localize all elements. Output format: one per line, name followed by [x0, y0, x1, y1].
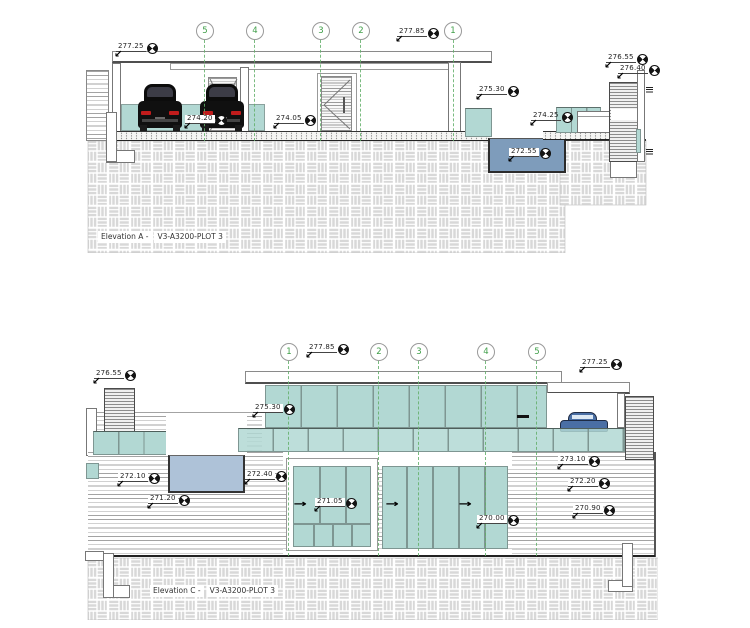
level-marker-chimney-top: 276.55 ↙	[94, 370, 124, 379]
grid-bubble: 3	[410, 343, 428, 361]
car-bumper	[142, 119, 178, 122]
spot-level-icon	[125, 370, 136, 381]
leader-arrow-icon: ↙	[556, 463, 564, 473]
grid-bubble-label: 2	[358, 26, 363, 36]
leader-arrow-icon: ↙	[507, 155, 515, 165]
spot-level-icon	[649, 65, 660, 76]
level-marker-pool-deck: 274.25 ↙	[531, 112, 561, 121]
level-marker-rear-wall: 276.40 ↙	[618, 65, 648, 74]
car-taillight-left	[141, 111, 151, 115]
caption-elevation-name: Elevation A -	[98, 231, 151, 243]
drawing-caption: Elevation C - V3-A3200-PLOT 3	[150, 585, 278, 597]
spot-level-icon	[611, 359, 622, 370]
door-mullion	[406, 467, 408, 548]
door-mullion	[313, 525, 315, 546]
spot-level-icon	[147, 43, 158, 54]
spot-level-icon	[346, 498, 357, 509]
drawing-canvas: Elevation A - V3-A3200-PLOT 3 5 4 3 2 1 …	[0, 0, 750, 628]
car-wheel	[235, 125, 242, 131]
level-marker-balustrade: 275.30 ↙	[477, 86, 507, 95]
leader-arrow-icon: ↙	[571, 512, 579, 522]
grid-bubble: 5	[196, 22, 214, 40]
leader-arrow-icon: ↙	[475, 93, 483, 103]
spot-level-icon	[428, 28, 439, 39]
footing-right	[610, 160, 637, 178]
grid-bubble-label: 5	[202, 26, 207, 36]
grid-bubble: 4	[477, 343, 495, 361]
grid-bubble: 1	[444, 22, 462, 40]
grid-bubble-label: 1	[450, 26, 455, 36]
level-marker-rear-wall-top: 276.55 ↙	[606, 54, 636, 63]
level-marker-garage-slab: 274.20 ↙	[185, 115, 215, 124]
spot-level-icon	[149, 473, 160, 484]
sliding-door-1-glass	[293, 466, 371, 524]
footing-left-stem	[103, 553, 114, 598]
grid-bubble: 4	[246, 22, 264, 40]
grid-line-1	[453, 40, 454, 141]
grid-line-3	[418, 361, 419, 556]
leader-arrow-icon: ↙	[183, 122, 191, 132]
grid-bubble: 2	[352, 22, 370, 40]
spot-level-icon	[508, 86, 519, 97]
footing-left-stem	[106, 112, 117, 162]
pool-section	[168, 455, 245, 493]
car-rear-window	[209, 87, 235, 97]
grid-bubble: 1	[280, 343, 298, 361]
pool-surround	[166, 415, 247, 455]
carport-column	[617, 393, 625, 428]
spot-level-icon	[305, 115, 316, 126]
leader-arrow-icon: ↙	[243, 478, 251, 488]
vent-mark	[646, 149, 653, 155]
leader-arrow-icon: ↙	[114, 50, 122, 60]
grid-bubble-label: 2	[376, 347, 381, 357]
leader-arrow-icon: ↙	[529, 119, 537, 129]
level-marker-garden-left: 271.20 ↙	[148, 495, 178, 504]
grid-line-4	[254, 40, 255, 141]
ground-line	[98, 555, 655, 557]
grid-bubble-label: 1	[286, 347, 291, 357]
sliding-door-1-spandrel	[293, 524, 371, 547]
sliding-door-2-glass	[382, 466, 508, 549]
spot-level-icon	[284, 404, 295, 415]
glass-sliver	[86, 463, 99, 479]
spot-level-icon	[562, 112, 573, 123]
spot-level-icon	[276, 471, 287, 482]
spot-level-icon	[604, 505, 615, 516]
level-marker-wall-step-lower: 270.90 ↙	[573, 505, 603, 514]
level-marker-wall-step-mid: 272.20 ↙	[568, 478, 598, 487]
leader-arrow-icon: ↙	[578, 366, 586, 376]
door-mullion	[332, 525, 334, 546]
vent-mark	[646, 87, 653, 93]
spot-level-icon	[338, 344, 349, 355]
level-marker-pool-base: 272.55 ↙	[509, 148, 539, 157]
level-marker-terrace-upper: 272.10 ↙	[118, 473, 148, 482]
grid-bubble-label: 3	[318, 26, 323, 36]
grid-bubble-label: 3	[416, 347, 421, 357]
leader-arrow-icon: ↙	[305, 351, 313, 361]
clerestory-glazing	[265, 385, 547, 428]
spot-level-icon	[179, 495, 190, 506]
grid-bubble-label: 4	[483, 347, 488, 357]
spot-level-icon	[599, 478, 610, 489]
ground-ledge	[85, 551, 104, 561]
level-marker-wall-step-upper: 273.10 ↙	[558, 456, 588, 465]
grid-bubble: 2	[370, 343, 388, 361]
level-marker-roof: 277.85 ↙	[307, 344, 337, 353]
leader-arrow-icon: ↙	[604, 61, 612, 71]
caption-elevation-name: Elevation C -	[150, 585, 204, 597]
counter-top-line	[578, 116, 613, 117]
door-mullion	[351, 525, 353, 546]
leader-arrow-icon: ↙	[566, 485, 574, 495]
car-wheel	[173, 125, 180, 131]
door-mullion	[432, 467, 434, 548]
slide-direction-arrow-icon: →	[385, 500, 398, 510]
level-marker-roof: 277.85 ↙	[397, 28, 427, 37]
leader-arrow-icon: ↙	[313, 505, 321, 515]
footing-right-stem	[622, 543, 633, 587]
leader-arrow-icon: ↙	[116, 480, 124, 490]
wall-edge-line	[654, 452, 656, 557]
car-wheel	[140, 125, 147, 131]
grid-line-5	[536, 361, 537, 556]
main-roof-slab	[245, 371, 562, 384]
door-mullion	[345, 467, 347, 523]
spot-level-icon	[589, 456, 600, 467]
grid-line-1	[288, 361, 289, 556]
caption-document-ref: V3-A3200-PLOT 3	[207, 585, 278, 597]
grid-line-3	[320, 40, 321, 141]
car-taillight-right	[169, 111, 179, 115]
glass-balustrade-band	[238, 428, 625, 452]
grid-bubble: 3	[312, 22, 330, 40]
elevation-c-view: → → →	[0, 300, 750, 628]
slide-direction-arrow-icon: →	[293, 500, 306, 510]
leader-arrow-icon: ↙	[395, 35, 403, 45]
level-marker-terrace-step: 272.40 ↙	[245, 471, 275, 480]
leader-arrow-icon: ↙	[146, 502, 154, 512]
car-taillight-right	[231, 111, 241, 115]
spot-level-icon	[216, 115, 227, 126]
glass-sliver	[636, 129, 641, 153]
grid-bubble-label: 4	[252, 26, 257, 36]
level-marker-carport-parapet: 277.25 ↙	[580, 359, 610, 368]
glass-balustrade-left	[93, 431, 168, 455]
chimney-right	[625, 396, 654, 460]
spot-level-icon	[540, 148, 551, 159]
level-marker-ground-level: 270.00 ↙	[477, 515, 507, 524]
car-rear-view	[138, 84, 182, 131]
level-marker-parapet: 277.25 ↙	[116, 43, 146, 52]
level-marker-clerestory-sill: 275.30 ↙	[253, 404, 283, 413]
leader-arrow-icon: ↙	[616, 72, 624, 82]
grid-bubble: 5	[528, 343, 546, 361]
level-marker-entry-slab: 274.05 ↙	[274, 115, 304, 124]
spot-level-icon	[508, 515, 519, 526]
grid-line-5	[204, 40, 205, 141]
car-window	[572, 415, 593, 420]
leader-arrow-icon: ↙	[251, 411, 259, 421]
grid-bubble-label: 5	[534, 347, 539, 357]
drawing-caption: Elevation A - V3-A3200-PLOT 3	[98, 231, 226, 243]
door-handle	[517, 415, 529, 418]
leader-arrow-icon: ↙	[475, 522, 483, 532]
level-marker-floor-level: 271.05 ↙	[315, 498, 345, 507]
slide-direction-arrow-icon: →	[458, 500, 471, 510]
grid-line-4	[485, 361, 486, 556]
caption-document-ref: V3-A3200-PLOT 3	[154, 231, 225, 243]
leader-arrow-icon: ↙	[272, 122, 280, 132]
leader-arrow-icon: ↙	[92, 377, 100, 387]
grid-line-2	[360, 40, 361, 141]
car-rear-window	[147, 87, 173, 97]
grid-line-2	[378, 361, 379, 556]
